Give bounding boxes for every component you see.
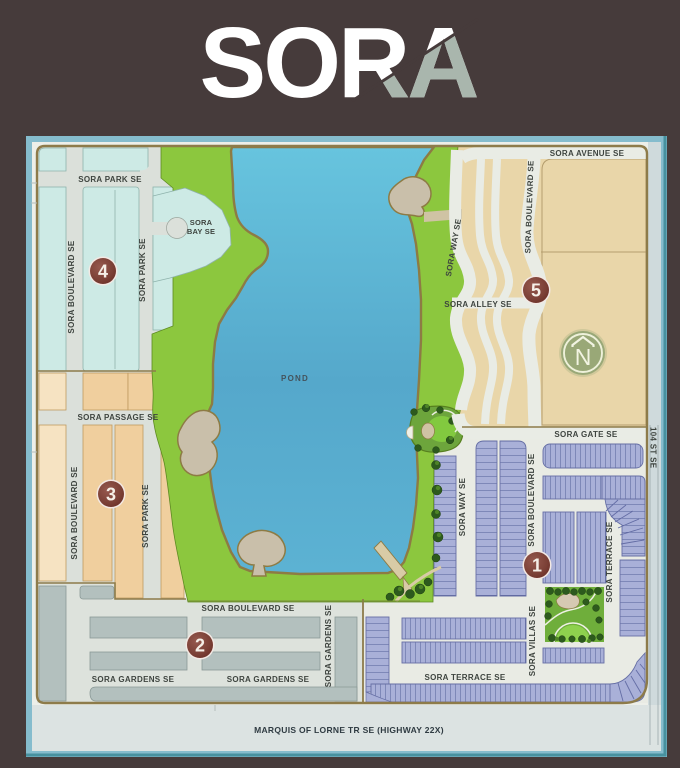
svg-text:SORA GARDENS SE: SORA GARDENS SE — [324, 604, 333, 687]
svg-text:BAY SE: BAY SE — [187, 227, 215, 236]
svg-text:SORA TERRACE SE: SORA TERRACE SE — [424, 673, 505, 682]
svg-text:SORA: SORA — [190, 218, 213, 227]
svg-text:4: 4 — [98, 262, 108, 282]
svg-text:SORA TERRACE SE: SORA TERRACE SE — [605, 521, 614, 602]
svg-text:SORA ALLEY SE: SORA ALLEY SE — [444, 300, 512, 309]
svg-text:104 ST SE: 104 ST SE — [649, 427, 658, 469]
svg-text:SORA PARK SE: SORA PARK SE — [138, 238, 147, 302]
svg-text:SORA BOULEVARD SE: SORA BOULEVARD SE — [527, 453, 536, 546]
svg-text:SORA GARDENS SE: SORA GARDENS SE — [227, 675, 310, 684]
svg-text:SORA WAY SE: SORA WAY SE — [458, 477, 467, 536]
svg-text:SORA BOULEVARD SE: SORA BOULEVARD SE — [70, 466, 79, 559]
svg-text:SORA GARDENS SE: SORA GARDENS SE — [92, 675, 175, 684]
svg-text:SORA VILLAS SE: SORA VILLAS SE — [528, 605, 537, 676]
svg-text:SORA GATE SE: SORA GATE SE — [554, 430, 618, 439]
svg-text:3: 3 — [106, 485, 116, 505]
svg-text:SORA BOULEVARD SE: SORA BOULEVARD SE — [67, 240, 76, 333]
svg-text:SORA PARK SE: SORA PARK SE — [141, 484, 150, 548]
svg-text:1: 1 — [532, 556, 542, 576]
svg-text:MARQUIS OF LORNE TR SE (HIGHWA: MARQUIS OF LORNE TR SE (HIGHWAY 22X) — [254, 725, 444, 735]
svg-text:2: 2 — [195, 636, 205, 656]
svg-text:5: 5 — [531, 281, 541, 301]
svg-text:SORA PASSAGE SE: SORA PASSAGE SE — [78, 413, 159, 422]
svg-text:SORA PARK SE: SORA PARK SE — [78, 175, 142, 184]
svg-text:SORA AVENUE SE: SORA AVENUE SE — [550, 149, 625, 158]
svg-text:N: N — [575, 344, 592, 370]
svg-text:POND: POND — [281, 374, 309, 383]
svg-text:SORA BOULEVARD SE: SORA BOULEVARD SE — [201, 604, 294, 613]
